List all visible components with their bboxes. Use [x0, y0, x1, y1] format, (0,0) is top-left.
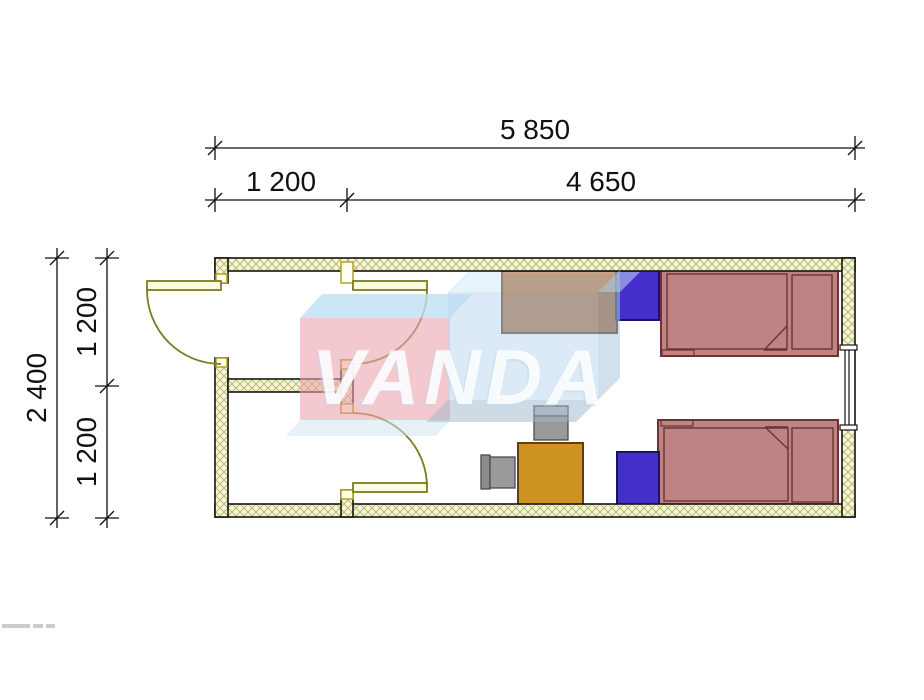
desk-body: [518, 443, 583, 506]
dim-label-entry-width: 1 200: [246, 166, 316, 197]
chair-side-seat: [490, 457, 515, 488]
upper-door-leaf: [353, 281, 427, 290]
exterior-door-swing-arc: [147, 290, 221, 364]
fine-print-smudge: [2, 624, 55, 628]
fine-print-segment: [2, 624, 30, 628]
window: [840, 345, 857, 430]
dim-label-lower-depth: 1 200: [71, 417, 102, 487]
wall-top: [215, 258, 855, 271]
window-sill-bottom: [840, 425, 857, 430]
nightstand-lower: [617, 452, 659, 506]
desk: [518, 443, 583, 506]
watermark-text: VANDA: [312, 333, 609, 421]
bed-lower-body: [658, 420, 838, 506]
nightstand-lower-body: [617, 452, 659, 506]
fine-print-segment: [33, 624, 43, 628]
dim-label-overall-width: 5 850: [500, 114, 570, 145]
wall-left-lower: [215, 358, 228, 517]
watermark-left-bottom-face: [286, 420, 450, 436]
chair-side-backrest: [481, 455, 490, 489]
bed-upper-body: [661, 268, 838, 356]
jamb-ext-bottom: [216, 358, 227, 367]
dim-label-main-width: 4 650: [566, 166, 636, 197]
wall-bottom: [215, 504, 855, 517]
wall-right-upper: [842, 258, 855, 348]
window-sill-top: [840, 345, 857, 350]
dim-label-upper-depth: 1 200: [71, 287, 102, 357]
jamb-lower-door-bottom: [341, 490, 353, 499]
lower-door-leaf: [353, 483, 427, 492]
exterior-door: [147, 281, 221, 364]
bed-upper: [661, 268, 838, 356]
vanda-watermark: VANDA: [286, 270, 640, 436]
wall-right-lower: [842, 427, 855, 517]
watermark-left-top-face: [300, 294, 472, 318]
floor-plan-page: 5 850 1 200 4 650 2 400 1 200 1 200 VAND…: [0, 0, 924, 700]
floor-plan-drawing: 5 850 1 200 4 650 2 400 1 200 1 200 VAND…: [0, 0, 924, 700]
fine-print-segment: [46, 624, 55, 628]
exterior-door-leaf: [147, 281, 221, 290]
bed-lower: [658, 420, 838, 506]
dim-label-overall-depth: 2 400: [21, 353, 52, 423]
chair-side: [481, 455, 515, 489]
jamb-upper-door-top: [341, 262, 353, 283]
